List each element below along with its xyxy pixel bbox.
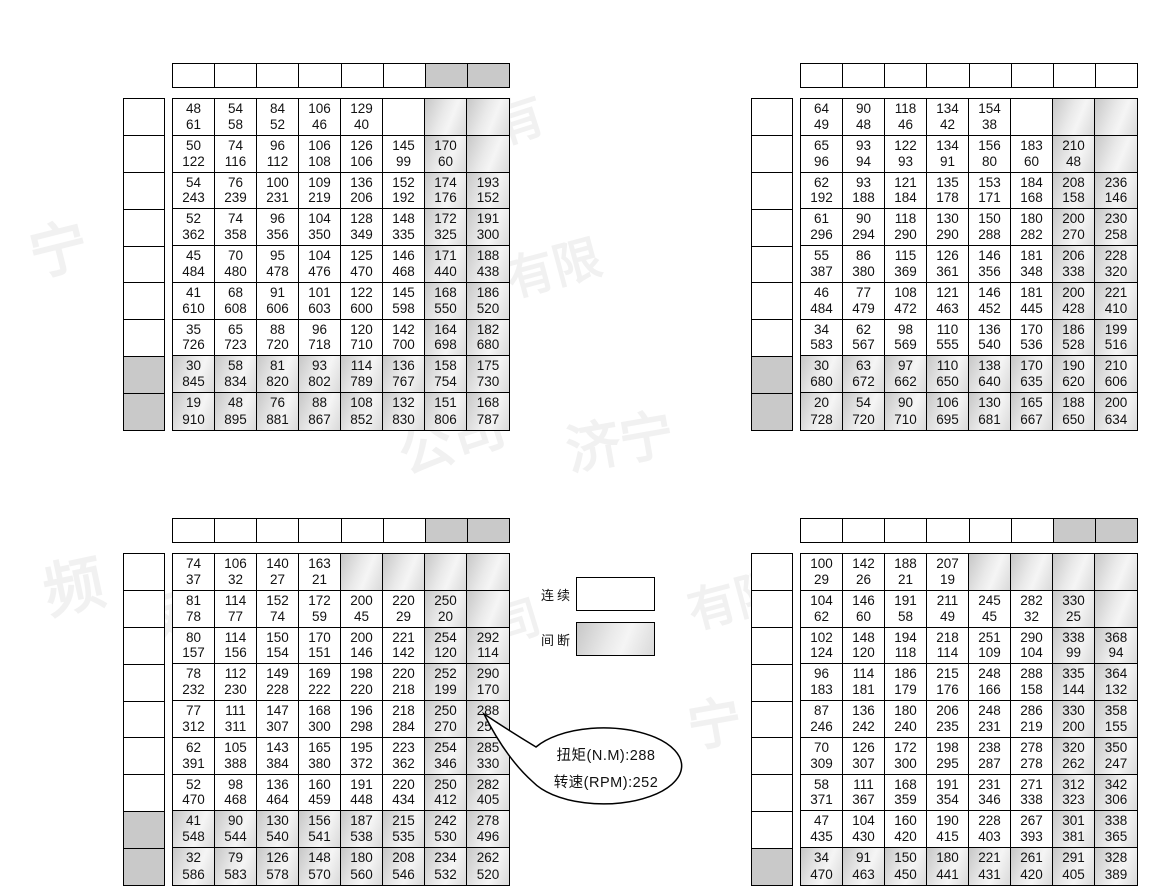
- data-cell: 125470: [341, 246, 383, 283]
- data-cell: 160420: [885, 811, 927, 848]
- torque-value: 143: [257, 740, 298, 755]
- torque-value: 50: [173, 138, 214, 153]
- torque-value: 292: [467, 630, 509, 645]
- table-caption-row: [172, 47, 510, 62]
- torque-value: 245: [969, 593, 1010, 608]
- speed-value: 420: [1011, 867, 1052, 882]
- torque-value: 84: [257, 101, 298, 116]
- torque-value: 136: [341, 175, 382, 190]
- torque-value: 169: [299, 666, 340, 681]
- torque-value: 68: [215, 285, 256, 300]
- data-cell: 24545: [969, 591, 1011, 628]
- speed-value: 710: [341, 337, 382, 352]
- table-caption-row: [172, 502, 510, 517]
- data-cell: 194118: [885, 628, 927, 665]
- data-cell: 170635: [1011, 356, 1053, 393]
- speed-value: 61: [173, 117, 214, 132]
- speed-value: 450: [885, 867, 926, 882]
- flow-row-header: [752, 173, 792, 210]
- speed-value: 166: [969, 682, 1010, 697]
- speed-value: 320: [1095, 264, 1137, 279]
- data-cell: 199516: [1095, 320, 1137, 357]
- torque-value: 74: [173, 556, 214, 571]
- data-cell: 130540: [257, 811, 299, 848]
- speed-value: 282: [1011, 227, 1052, 242]
- torque-value: 180: [1011, 211, 1052, 226]
- data-cell: 181348: [1011, 246, 1053, 283]
- data-cell: 252199: [425, 664, 467, 701]
- data-cell: 121184: [885, 173, 927, 210]
- data-cell: 33025: [1053, 591, 1095, 628]
- flow-row-header: [752, 554, 792, 591]
- data-cell: 126361: [927, 246, 969, 283]
- speed-value: 157: [173, 645, 214, 660]
- pressure-col-header: [384, 519, 426, 542]
- data-cell: 175730: [467, 356, 509, 393]
- torque-value: 90: [215, 813, 256, 828]
- speed-value: 478: [257, 264, 298, 279]
- data-cell: 254346: [425, 738, 467, 775]
- flow-row-header: [752, 283, 792, 320]
- data-cell: 108852: [341, 393, 383, 430]
- torque-value: 128: [341, 211, 382, 226]
- speed-value: 380: [299, 756, 340, 771]
- speed-value: 284: [383, 719, 424, 734]
- speed-value: 362: [173, 227, 214, 242]
- data-cell: 96183: [801, 664, 843, 701]
- speed-value: 146: [341, 645, 382, 660]
- torque-value: 221: [383, 630, 424, 645]
- torque-value: 150: [885, 850, 926, 865]
- torque-value: 96: [257, 211, 298, 226]
- torque-value: 126: [927, 248, 968, 263]
- data-grid: 6449904811846134421543865969394122931349…: [800, 98, 1138, 431]
- speed-value: 338: [1011, 792, 1052, 807]
- torque-value: 136: [383, 358, 424, 373]
- torque-value: 198: [927, 740, 968, 755]
- torque-value: 286: [1011, 703, 1052, 718]
- pressure-col-header: [1054, 64, 1096, 87]
- callout-torque-text: 扭矩(N.M):288: [520, 744, 692, 765]
- pressure-col-header: [1012, 519, 1054, 542]
- torque-value: 172: [425, 211, 466, 226]
- speed-value: 434: [383, 792, 424, 807]
- speed-value: 59: [299, 609, 340, 624]
- data-cell: 208546: [383, 848, 425, 885]
- speed-value: 820: [257, 374, 298, 389]
- data-cell: 254120: [425, 628, 467, 665]
- pressure-col-header: [257, 519, 299, 542]
- legend-continuous-swatch: [576, 577, 655, 611]
- speed-value: 158: [1011, 682, 1052, 697]
- pressure-col-header: [384, 64, 426, 87]
- data-cell: 122600: [341, 283, 383, 320]
- torque-value: 102: [801, 630, 842, 645]
- torque-value: 114: [843, 666, 884, 681]
- speed-value: 680: [467, 337, 509, 352]
- torque-value: 121: [927, 285, 968, 300]
- pressure-col-header: [426, 64, 468, 87]
- speed-value: 470: [173, 792, 214, 807]
- speed-value: 300: [885, 756, 926, 771]
- speed-value: 116: [215, 154, 256, 169]
- torque-value: 74: [215, 138, 256, 153]
- data-cell: 158754: [425, 356, 467, 393]
- speed-value: 520: [467, 867, 509, 882]
- data-cell: 90710: [885, 393, 927, 430]
- data-cell: 58834: [215, 356, 257, 393]
- torque-value: 104: [843, 813, 884, 828]
- speed-value: 720: [257, 337, 298, 352]
- speed-value: 243: [173, 190, 214, 205]
- torque-value: 55: [801, 248, 842, 263]
- torque-value: 96: [299, 322, 340, 337]
- data-cell: 68608: [215, 283, 257, 320]
- speed-value: 37: [173, 572, 214, 587]
- speed-value: 367: [843, 792, 884, 807]
- data-cell: 41548: [173, 811, 215, 848]
- speed-value: 240: [885, 719, 926, 734]
- data-cell: 164698: [425, 320, 467, 357]
- data-cell: 50122: [173, 136, 215, 173]
- flow-header-column: [751, 553, 793, 886]
- speed-value: 516: [1095, 337, 1137, 352]
- speed-value: 578: [257, 867, 298, 882]
- torque-value: 171: [425, 248, 466, 263]
- torque-value: 79: [215, 850, 256, 865]
- data-cell: 171440: [425, 246, 467, 283]
- speed-value: 231: [969, 719, 1010, 734]
- data-cell: 98569: [885, 320, 927, 357]
- data-cell: 228320: [1095, 246, 1137, 283]
- data-cell: 152192: [383, 173, 425, 210]
- data-cell: 172300: [885, 738, 927, 775]
- torque-value: 90: [843, 101, 884, 116]
- torque-value: 65: [215, 322, 256, 337]
- speed-value: 720: [843, 412, 884, 427]
- speed-value: 541: [299, 829, 340, 844]
- torque-value: 248: [969, 666, 1010, 681]
- speed-value: 46: [885, 117, 926, 132]
- speed-value: 754: [425, 374, 466, 389]
- torque-value: 254: [425, 740, 466, 755]
- speed-value: 38: [969, 117, 1010, 132]
- speed-value: 242: [843, 719, 884, 734]
- torque-value: 114: [215, 630, 256, 645]
- data-cell: 182680: [467, 320, 509, 357]
- data-cell: 128349: [341, 209, 383, 246]
- torque-value: 211: [927, 593, 968, 608]
- speed-value: 309: [801, 756, 842, 771]
- speed-value: 620: [1053, 374, 1094, 389]
- torque-value: 350: [1095, 740, 1137, 755]
- data-cell: 54720: [843, 393, 885, 430]
- speed-value: 154: [257, 645, 298, 660]
- pressure-col-header: [927, 64, 969, 87]
- torque-value: 301: [1053, 813, 1094, 828]
- data-cell: 221410: [1095, 283, 1137, 320]
- flow-row-header: [124, 210, 164, 247]
- data-cell: 188650: [1053, 393, 1095, 430]
- data-cell: 10462: [801, 591, 843, 628]
- torque-value: 364: [1095, 666, 1137, 681]
- data-cell: 74116: [215, 136, 257, 173]
- torque-value: 251: [969, 630, 1010, 645]
- data-cell: [383, 99, 425, 136]
- data-cell: 142700: [383, 320, 425, 357]
- data-cell: 218114: [927, 628, 969, 665]
- data-cell: 261420: [1011, 848, 1053, 885]
- torque-value: 234: [425, 850, 466, 865]
- torque-value: 47: [801, 813, 842, 828]
- flow-row-header: [752, 136, 792, 173]
- speed-value: 548: [173, 829, 214, 844]
- data-cell: 168550: [425, 283, 467, 320]
- data-cell: 320262: [1053, 738, 1095, 775]
- pressure-col-header: [970, 64, 1012, 87]
- speed-value: 220: [341, 682, 382, 697]
- torque-value: 111: [843, 777, 884, 792]
- speed-value: 695: [927, 412, 968, 427]
- torque-value: 267: [1011, 813, 1052, 828]
- speed-value: 287: [969, 756, 1010, 771]
- data-cell: 250270: [425, 701, 467, 738]
- torque-value: 188: [1053, 395, 1094, 410]
- torque-value: 77: [843, 285, 884, 300]
- data-cell: 156541: [299, 811, 341, 848]
- torque-value: 338: [1095, 813, 1137, 828]
- pressure-col-header: [342, 519, 384, 542]
- speed-value: 19: [927, 572, 968, 587]
- data-cell: 48895: [215, 393, 257, 430]
- data-cell: 196298: [341, 701, 383, 738]
- data-cell: 109219: [299, 173, 341, 210]
- speed-value: 535: [383, 829, 424, 844]
- speed-value: 325: [425, 227, 466, 242]
- torque-value: 93: [299, 358, 340, 373]
- data-cell: 111367: [843, 775, 885, 812]
- data-cell: 312323: [1053, 775, 1095, 812]
- torque-value: 180: [341, 850, 382, 865]
- data-cell: 91606: [257, 283, 299, 320]
- torque-value: 193: [467, 175, 509, 190]
- data-cell: 292114: [467, 628, 509, 665]
- torque-value: 261: [1011, 850, 1052, 865]
- flow-row-header: [124, 738, 164, 775]
- speed-value: 365: [1095, 829, 1137, 844]
- torque-value: 186: [467, 285, 509, 300]
- speed-value: 532: [425, 867, 466, 882]
- speed-value: 387: [801, 264, 842, 279]
- torque-value: 100: [801, 556, 842, 571]
- data-cell: 115369: [885, 246, 927, 283]
- flow-row-header: [124, 812, 164, 849]
- torque-value: 52: [173, 777, 214, 792]
- torque-value: 170: [299, 630, 340, 645]
- flow-row-header: [124, 283, 164, 320]
- speed-value: 152: [467, 190, 509, 205]
- torque-value: 231: [969, 777, 1010, 792]
- data-cell: 19910: [173, 393, 215, 430]
- torque-value: 200: [1095, 395, 1137, 410]
- flow-header-column: [123, 553, 165, 886]
- speed-value: 288: [969, 227, 1010, 242]
- flow-row-header: [124, 136, 164, 173]
- data-cell: 114181: [843, 664, 885, 701]
- torque-value: 93: [843, 138, 884, 153]
- speed-value: 258: [1095, 227, 1137, 242]
- torque-value: 221: [969, 850, 1010, 865]
- speed-value: 730: [467, 374, 509, 389]
- flow-row-header: [124, 591, 164, 628]
- data-cell: 228403: [969, 811, 1011, 848]
- torque-value: 220: [383, 666, 424, 681]
- speed-value: 91: [927, 154, 968, 169]
- torque-value: 291: [1053, 850, 1094, 865]
- data-cell: 76881: [257, 393, 299, 430]
- torque-value: 108: [341, 395, 382, 410]
- speed-value: 358: [215, 227, 256, 242]
- data-cell: 18360: [1011, 136, 1053, 173]
- data-cell: 61296: [801, 209, 843, 246]
- speed-value: 468: [215, 792, 256, 807]
- torque-value: 34: [801, 322, 842, 337]
- speed-value: 311: [215, 719, 256, 734]
- torque-value: 106: [299, 101, 340, 116]
- speed-value: 380: [843, 264, 884, 279]
- torque-value: 121: [885, 175, 926, 190]
- data-cell: 18821: [885, 554, 927, 591]
- speed-value: 49: [927, 609, 968, 624]
- data-cell: 13491: [927, 136, 969, 173]
- speed-value: 391: [173, 756, 214, 771]
- data-cell: 93188: [843, 173, 885, 210]
- torque-value: 191: [927, 777, 968, 792]
- speed-value: 219: [299, 190, 340, 205]
- speed-value: 346: [425, 756, 466, 771]
- data-grid: 7437106321402716321817811477152741725920…: [172, 553, 510, 886]
- data-cell: [467, 99, 509, 136]
- data-cell: 148335: [383, 209, 425, 246]
- pressure-col-header: [173, 519, 215, 542]
- pressure-col-header: [1096, 64, 1137, 87]
- data-grid: 1002914226188212071910462146601915821149…: [800, 553, 1138, 886]
- torque-value: 86: [843, 248, 884, 263]
- data-cell: 5458: [215, 99, 257, 136]
- data-cell: 110650: [927, 356, 969, 393]
- flow-row-header: [124, 775, 164, 812]
- speed-value: 463: [927, 301, 968, 316]
- torque-value: 250: [425, 777, 466, 792]
- speed-value: 192: [383, 190, 424, 205]
- torque-value: 80: [173, 630, 214, 645]
- speed-value: 496: [467, 829, 509, 844]
- data-cell: 168359: [885, 775, 927, 812]
- speed-value: 356: [257, 227, 298, 242]
- torque-value: 126: [843, 740, 884, 755]
- speed-value: 603: [299, 301, 340, 316]
- speed-value: 108: [299, 154, 340, 169]
- data-cell: 52362: [173, 209, 215, 246]
- speed-value: 412: [425, 792, 466, 807]
- torque-value: 190: [1053, 358, 1094, 373]
- data-cell: 104430: [843, 811, 885, 848]
- speed-value: 246: [801, 719, 842, 734]
- torque-value: 140: [257, 556, 298, 571]
- torque-value: 160: [299, 777, 340, 792]
- torque-value: 126: [341, 138, 382, 153]
- torque-value: 136: [257, 777, 298, 792]
- speed-value: 29: [801, 572, 842, 587]
- data-cell: 106108: [299, 136, 341, 173]
- speed-value: 40: [341, 117, 382, 132]
- data-cell: 41610: [173, 283, 215, 320]
- torque-value: 101: [299, 285, 340, 300]
- torque-value: 180: [927, 850, 968, 865]
- data-cell: 111311: [215, 701, 257, 738]
- data-cell: 181445: [1011, 283, 1053, 320]
- torque-value: 54: [215, 101, 256, 116]
- data-cell: 105388: [215, 738, 257, 775]
- speed-value: 96: [801, 154, 842, 169]
- pressure-col-header: [468, 64, 509, 87]
- speed-value: 410: [1095, 301, 1137, 316]
- torque-value: 175: [467, 358, 509, 373]
- data-cell: [341, 554, 383, 591]
- data-cell: 14660: [843, 591, 885, 628]
- data-cell: 15680: [969, 136, 1011, 173]
- table-bmr-160: 1002914226188212071910462146601915821149…: [635, 483, 1147, 895]
- pressure-col-header: [885, 64, 927, 87]
- speed-value: 114: [467, 645, 509, 660]
- torque-value: 87: [801, 703, 842, 718]
- speed-value: 78: [173, 609, 214, 624]
- speed-value: 369: [885, 264, 926, 279]
- data-cell: 150450: [885, 848, 927, 885]
- speed-value: 583: [801, 337, 842, 352]
- torque-value: 165: [299, 740, 340, 755]
- speed-value: 142: [383, 645, 424, 660]
- flow-row-header: [124, 394, 164, 430]
- speed-value: 74: [257, 609, 298, 624]
- torque-value: 100: [257, 175, 298, 190]
- torque-value: 146: [383, 248, 424, 263]
- torque-value: 104: [299, 211, 340, 226]
- speed-value: 46: [299, 117, 340, 132]
- data-cell: 32586: [173, 848, 215, 885]
- data-cell: 200428: [1053, 283, 1095, 320]
- speed-value: 290: [927, 227, 968, 242]
- torque-value: 242: [425, 813, 466, 828]
- data-cell: 96718: [299, 320, 341, 357]
- data-cell: 186179: [885, 664, 927, 701]
- torque-value: 146: [843, 593, 884, 608]
- torque-value: 63: [843, 358, 884, 373]
- torque-value: 218: [383, 703, 424, 718]
- speed-value: 520: [467, 301, 509, 316]
- data-cell: 150288: [969, 209, 1011, 246]
- flow-row-header: [124, 320, 164, 357]
- torque-value: 62: [843, 322, 884, 337]
- speed-value: 206: [341, 190, 382, 205]
- torque-value: 41: [173, 813, 214, 828]
- speed-value: 598: [383, 301, 424, 316]
- data-cell: 206235: [927, 701, 969, 738]
- torque-value: 52: [173, 211, 214, 226]
- flow-row-header: [752, 394, 792, 430]
- data-cell: 220434: [383, 775, 425, 812]
- data-cell: 136206: [341, 173, 383, 210]
